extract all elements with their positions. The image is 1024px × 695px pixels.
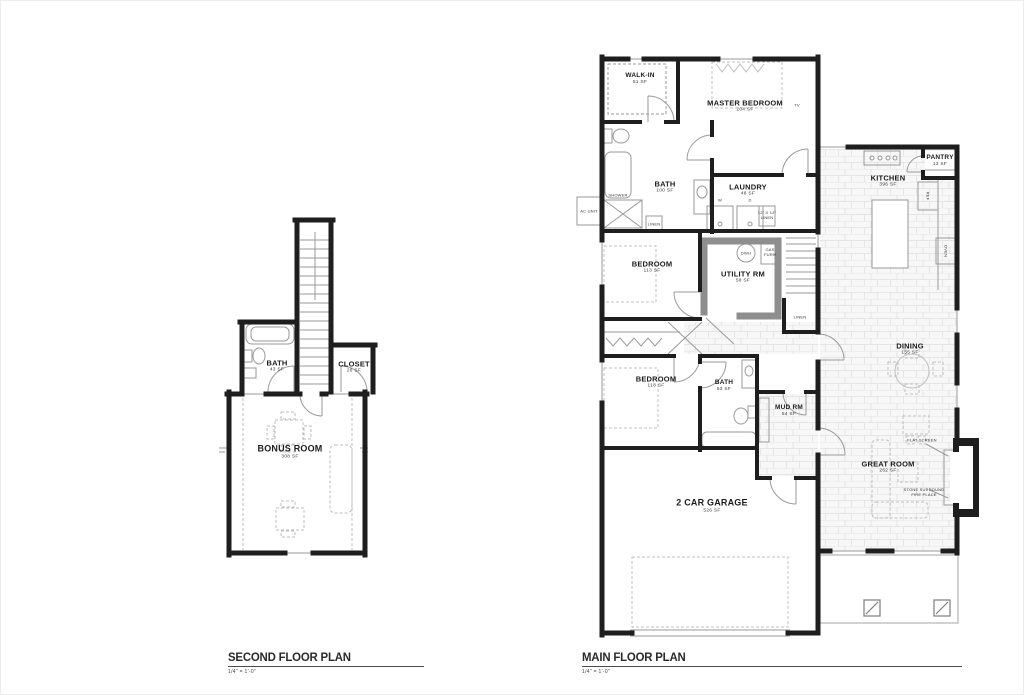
floorplan-sheet: BATH 43 SF CLOSET 26 SF BONUS ROOM 308 S… (0, 0, 1024, 695)
title-underline (582, 666, 962, 667)
main-floor-title-block: MAIN FLOOR PLAN 1/4" = 1'-0" (582, 650, 962, 675)
room-label-great-room: GREAT ROOM 262 SF (861, 460, 914, 475)
room-label-bonus-room: BONUS ROOM 308 SF (258, 444, 323, 461)
tv-note: TV (794, 103, 800, 108)
floorplan-drawing (0, 0, 1024, 695)
room-label-closet-2f: CLOSET 26 SF (338, 360, 370, 375)
room-label-kitchen: KITCHEN 396 SF (871, 174, 906, 189)
room-label-mud-rm: MUD RM 54 SF (775, 404, 803, 418)
linen-note-stairs: LINEN (794, 315, 807, 320)
shower-note: SHOWER (608, 193, 627, 198)
refrigerator-note: REF (926, 192, 931, 201)
fireplace-note: STONE SURROUND FIRE PLACE (904, 487, 945, 497)
gas-furnace-note: GAS FURN (764, 247, 776, 257)
linen-shelf-note: 12" X 12" LINEN (758, 210, 776, 220)
dryer-note: D (748, 198, 751, 203)
room-label-bath2: BATH 53 SF (715, 379, 733, 393)
oven-note: OVEN (944, 245, 949, 257)
room-label-bath1: BATH 100 SF (654, 180, 675, 195)
linen-note-bath: LINEN (648, 222, 661, 227)
second-floor-title: SECOND FLOOR PLAN (228, 650, 414, 664)
room-label-dining: DINING 155 SF (896, 342, 923, 357)
room-label-walkin: WALK-IN 51 SF (625, 72, 654, 86)
second-floor-plan (219, 220, 375, 555)
second-floor-title-block: SECOND FLOOR PLAN 1/4" = 1'-0" (228, 650, 424, 675)
room-label-pantry: PANTRY 13 SF (926, 154, 953, 168)
main-floor-title: MAIN FLOOR PLAN (582, 650, 943, 664)
second-floor-scale: 1/4" = 1'-0" (228, 669, 424, 675)
title-underline (228, 666, 424, 667)
flat-screen-note: FLAT SCREEN (907, 438, 936, 443)
room-label-utility-rm: UTILITY RM 58 SF (721, 270, 765, 285)
room-label-master-bedroom: MASTER BEDROOM 204 SF (707, 99, 783, 114)
room-label-bedroom2: BEDROOM 118 SF (636, 375, 677, 390)
room-label-bath-2f: BATH 43 SF (266, 359, 287, 374)
room-label-garage: 2 CAR GARAGE 526 SF (676, 498, 747, 515)
ac-unit-note: AC UNIT (580, 209, 597, 214)
main-floor-scale: 1/4" = 1'-0" (582, 669, 962, 675)
room-label-bedroom1: BEDROOM 113 SF (632, 260, 673, 275)
water-heater-note: DWH (741, 251, 751, 256)
washer-note: W (718, 198, 722, 203)
room-label-laundry: LAUNDRY 48 SF (729, 183, 767, 198)
fireplace (950, 438, 979, 517)
